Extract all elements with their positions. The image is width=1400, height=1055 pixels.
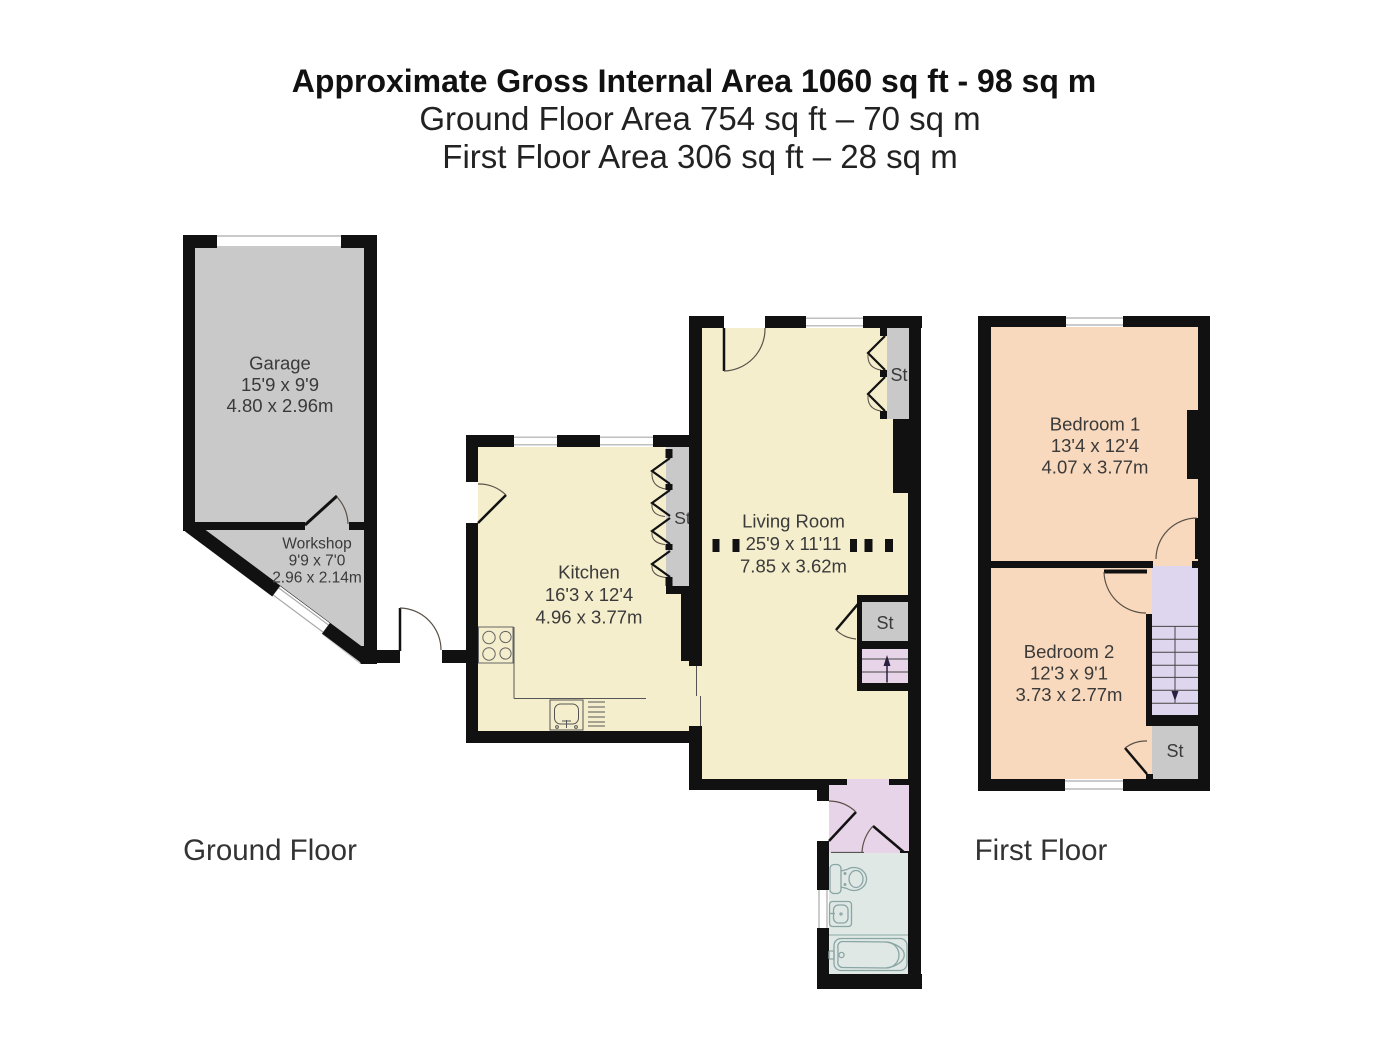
svg-text:Kitchen: Kitchen bbox=[558, 562, 620, 583]
svg-text:12'3 x 9'1: 12'3 x 9'1 bbox=[1030, 663, 1108, 684]
svg-text:Ground Floor Area 754 sq ft –: Ground Floor Area 754 sq ft – 70 sq m bbox=[419, 100, 980, 137]
svg-text:St: St bbox=[890, 365, 907, 385]
svg-text:13'4 x 12'4: 13'4 x 12'4 bbox=[1051, 435, 1139, 456]
svg-text:Bedroom 1: Bedroom 1 bbox=[1050, 414, 1141, 435]
svg-text:Garage: Garage bbox=[249, 353, 311, 374]
svg-text:Ground Floor: Ground Floor bbox=[183, 834, 357, 867]
svg-text:9'9 x 7'0: 9'9 x 7'0 bbox=[289, 553, 346, 570]
svg-text:7.85 x 3.62m: 7.85 x 3.62m bbox=[740, 556, 847, 577]
svg-text:Living Room: Living Room bbox=[742, 511, 845, 532]
svg-text:4.07 x 3.77m: 4.07 x 3.77m bbox=[1042, 457, 1149, 478]
svg-text:25'9 x 11'11: 25'9 x 11'11 bbox=[746, 533, 842, 554]
svg-text:Bedroom 2: Bedroom 2 bbox=[1024, 641, 1115, 662]
svg-text:4.96 x 3.77m: 4.96 x 3.77m bbox=[536, 607, 643, 628]
svg-text:3.73 x 2.77m: 3.73 x 2.77m bbox=[1016, 684, 1123, 705]
svg-text:2.96 x 2.14m: 2.96 x 2.14m bbox=[272, 570, 362, 587]
svg-text:St: St bbox=[674, 508, 691, 528]
svg-text:First Floor Area 306 sq ft – 2: First Floor Area 306 sq ft – 28 sq m bbox=[442, 138, 957, 175]
svg-text:First Floor: First Floor bbox=[975, 834, 1108, 867]
svg-text:16'3 x 12'4: 16'3 x 12'4 bbox=[545, 584, 633, 605]
svg-text:Workshop: Workshop bbox=[282, 536, 352, 553]
svg-text:St: St bbox=[876, 613, 893, 633]
svg-text:4.80 x 2.96m: 4.80 x 2.96m bbox=[227, 395, 334, 416]
svg-text:St: St bbox=[1166, 741, 1183, 761]
svg-text:15'9 x 9'9: 15'9 x 9'9 bbox=[241, 374, 319, 395]
svg-text:Approximate Gross Internal Are: Approximate Gross Internal Area 1060 sq … bbox=[292, 63, 1096, 99]
